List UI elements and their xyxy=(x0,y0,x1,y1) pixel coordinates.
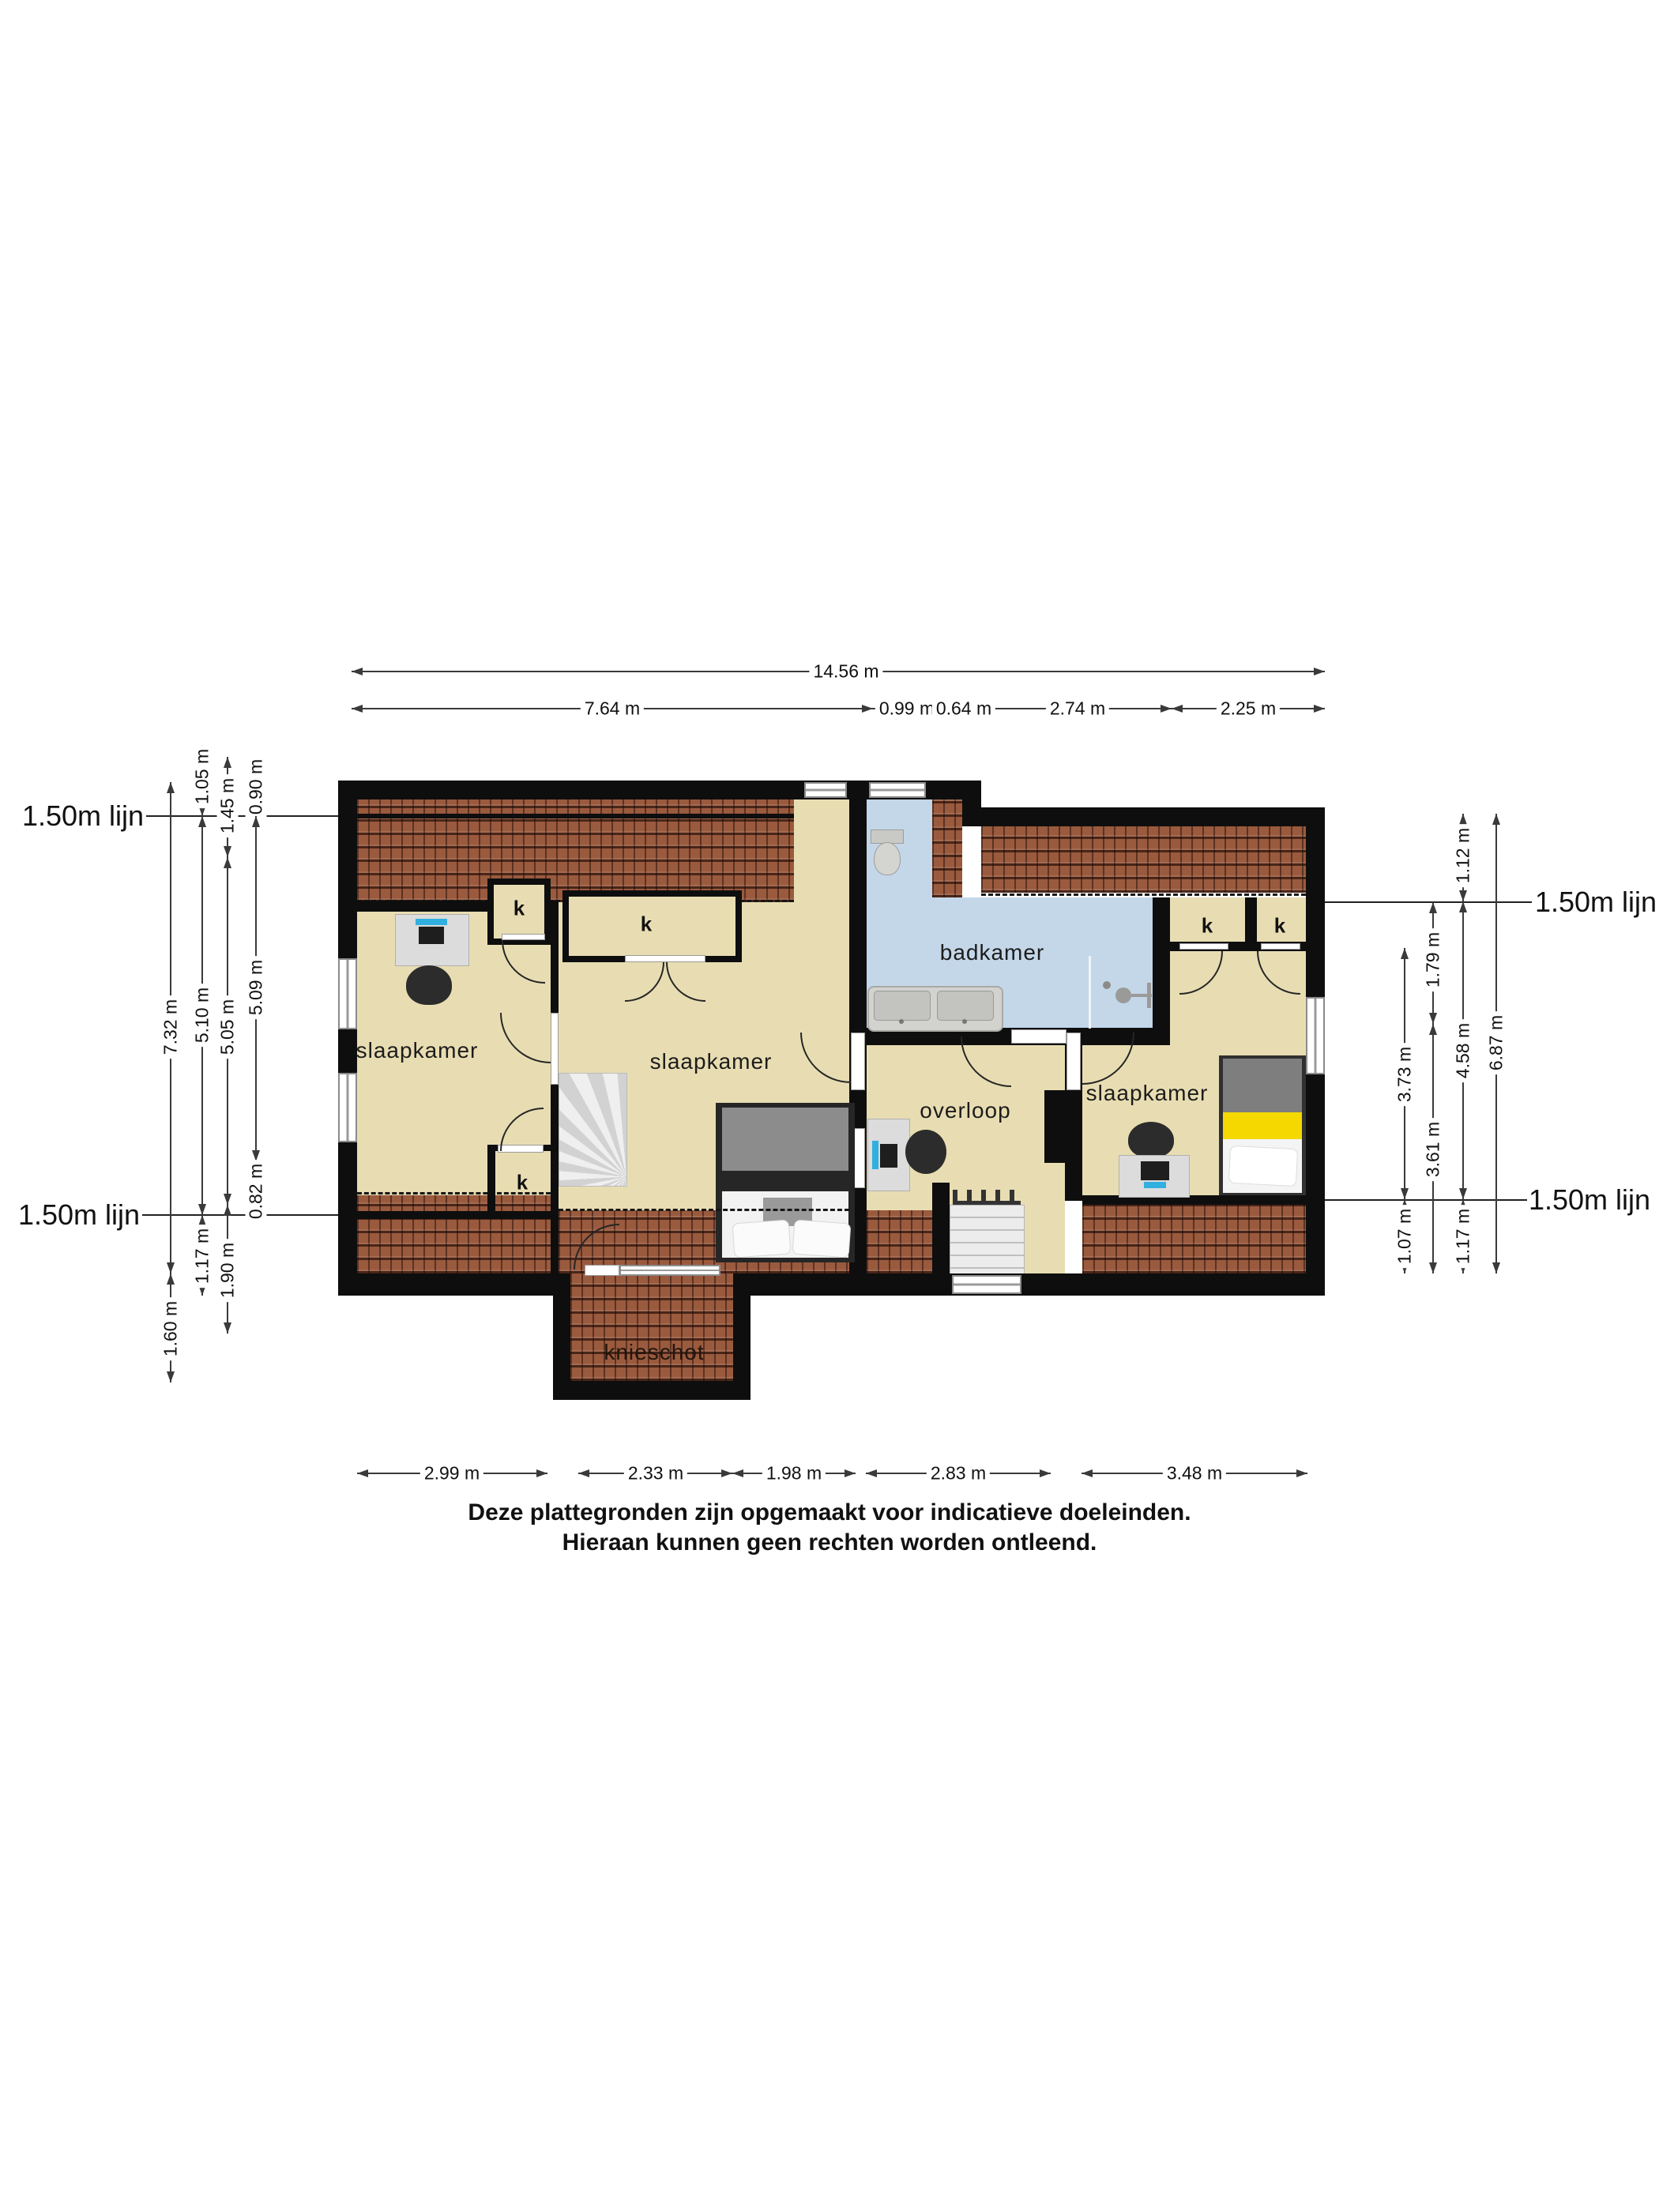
room-label-bedroom-middle: slaapkamer xyxy=(650,1049,773,1074)
dim-label: 5.05 m xyxy=(217,995,239,1059)
window xyxy=(619,1265,720,1276)
dim-arrow-icon xyxy=(1429,902,1437,913)
dim-arrow-icon xyxy=(224,846,231,857)
dim-arrow-icon xyxy=(352,705,363,713)
bed-pillow xyxy=(732,1220,792,1258)
dim-arrow-icon xyxy=(536,1469,547,1477)
bed-pillow xyxy=(792,1220,852,1258)
dim-label: 1.17 m xyxy=(192,1224,213,1288)
bathroom-window xyxy=(869,782,926,798)
dim-arrow-icon xyxy=(1401,948,1409,959)
dim-arrow-icon xyxy=(1082,1469,1093,1477)
dim-label: 14.56 m xyxy=(809,661,882,683)
dim-arrow-icon xyxy=(732,1469,743,1477)
dim-arrow-icon xyxy=(198,1204,206,1215)
dim-label: 3.61 m xyxy=(1423,1118,1444,1181)
closet-label: k xyxy=(1274,914,1285,939)
dim-arrow-icon xyxy=(578,1469,589,1477)
dim-arrow-icon xyxy=(1161,705,1172,713)
desk-chair xyxy=(406,965,452,1005)
bed-headboard xyxy=(1223,1059,1302,1112)
ref-line-150 xyxy=(142,1214,338,1216)
dim-arrow-icon xyxy=(845,1469,856,1477)
dim-label: 0.90 m xyxy=(246,755,267,818)
dim-arrow-icon xyxy=(1429,1262,1437,1273)
desk-chair xyxy=(1128,1122,1174,1158)
monitor-icon xyxy=(872,1141,878,1169)
closet-label: k xyxy=(517,1171,528,1195)
ref-line-150 xyxy=(146,815,338,817)
dim-arrow-icon xyxy=(866,1469,877,1477)
roof-area xyxy=(981,826,1306,893)
bed-pillow xyxy=(1228,1145,1298,1187)
closet-big xyxy=(562,890,742,962)
dim-arrow-icon xyxy=(167,1273,175,1285)
closet-label: k xyxy=(641,912,652,937)
dim-label: 1.45 m xyxy=(217,774,239,837)
dim-arrow-icon xyxy=(252,816,260,827)
monitor-icon xyxy=(419,927,444,944)
dim-arrow-icon xyxy=(1492,814,1500,825)
floorplan-page: 14.56 m 7.64 m 0.99 m 0.64 m 2.74 m 2.25… xyxy=(0,0,1659,2212)
dim-arrow-icon xyxy=(167,1262,175,1273)
monitor-icon xyxy=(1144,1182,1166,1188)
dim-arrow-icon xyxy=(862,705,873,713)
disclaimer-line-1: Deze plattegronden zijn opgemaakt voor i… xyxy=(0,1499,1659,1526)
window xyxy=(338,1073,357,1142)
dim-label: 7.32 m xyxy=(160,995,182,1059)
dim-label: 7.64 m xyxy=(581,698,644,720)
ref-line-label: 1.50m lijn xyxy=(18,1198,140,1232)
dim-arrow-icon xyxy=(198,816,206,827)
dim-label: 2.83 m xyxy=(927,1463,990,1484)
closet-wall xyxy=(487,1145,495,1212)
dim-arrow-icon xyxy=(1459,1188,1467,1199)
dim-arrow-icon xyxy=(1459,890,1467,901)
dim-arrow-icon xyxy=(1492,1262,1500,1273)
dim-label: 5.10 m xyxy=(192,984,213,1047)
knee-wall-bottom xyxy=(553,1381,750,1400)
dim-arrow-icon xyxy=(167,782,175,793)
dim-arrow-icon xyxy=(224,757,231,768)
roof-area xyxy=(932,799,962,897)
dim-label: 0.64 m xyxy=(932,698,995,720)
dim-label: 1.98 m xyxy=(762,1463,826,1484)
dim-label: 1.90 m xyxy=(217,1239,239,1302)
dim-arrow-icon xyxy=(224,857,231,868)
roof-area xyxy=(1082,1205,1306,1273)
toilet xyxy=(874,842,901,875)
headroom-dashed-line xyxy=(559,1209,849,1211)
exterior-wall-bottom xyxy=(750,1273,1325,1296)
wall xyxy=(357,901,487,912)
dim-arrow-icon xyxy=(1401,1188,1409,1199)
dim-arrow-icon xyxy=(224,1322,231,1334)
monitor-icon xyxy=(416,919,447,925)
faucet-icon xyxy=(899,1019,904,1024)
dim-label: 1.12 m xyxy=(1453,824,1474,887)
disclaimer-line-2: Hieraan kunnen geen rechten worden ontle… xyxy=(0,1529,1659,1556)
window xyxy=(952,1275,1021,1294)
exterior-wall-bottom xyxy=(338,1273,553,1296)
dim-label: 1.17 m xyxy=(1453,1205,1474,1268)
wall xyxy=(1082,1195,1306,1205)
dim-arrow-icon xyxy=(1429,1013,1437,1024)
dim-label: 6.87 m xyxy=(1486,1011,1507,1074)
winder-stairs xyxy=(559,1073,627,1187)
dim-label: 1.79 m xyxy=(1423,928,1444,991)
dim-label: 0.82 m xyxy=(246,1160,267,1223)
dim-label: 1.07 m xyxy=(1394,1205,1416,1268)
dim-label: 3.73 m xyxy=(1394,1043,1416,1106)
roof-line xyxy=(357,1211,553,1219)
monitor-icon xyxy=(880,1144,897,1168)
dim-arrow-icon xyxy=(224,1194,231,1205)
bathroom-wall xyxy=(1153,897,1170,1045)
dim-arrow-icon xyxy=(352,668,363,675)
exterior-wall-top xyxy=(980,807,1325,826)
dim-arrow-icon xyxy=(1296,1469,1307,1477)
dim-arrow-icon xyxy=(224,1205,231,1216)
wall xyxy=(551,901,559,1273)
dim-arrow-icon xyxy=(357,1469,368,1477)
ref-line-150 xyxy=(1325,901,1532,903)
main-stairs xyxy=(950,1205,1025,1277)
dim-arrow-icon xyxy=(721,1469,732,1477)
dim-label: 0.99 m xyxy=(875,698,939,720)
dim-arrow-icon xyxy=(1172,705,1183,713)
room-label-knee-wall: knieschot xyxy=(604,1340,704,1365)
closet-door xyxy=(1261,943,1300,950)
door-opening xyxy=(851,1033,865,1090)
bathroom-door xyxy=(1011,1029,1066,1044)
shower-arm xyxy=(1147,983,1151,1008)
door-opening xyxy=(1066,1033,1081,1090)
dim-arrow-icon xyxy=(1314,705,1325,713)
headroom-dashed-line xyxy=(981,893,1306,896)
closet-door xyxy=(1179,943,1228,950)
ref-line-label: 1.50m lijn xyxy=(1535,886,1657,919)
roof-area xyxy=(867,1210,932,1273)
shower-head-icon xyxy=(1115,987,1131,1003)
dim-arrow-icon xyxy=(1314,668,1325,675)
dim-label: 3.48 m xyxy=(1163,1463,1226,1484)
exterior-wall-left xyxy=(338,781,357,1296)
window xyxy=(1306,997,1325,1074)
dim-label: 2.33 m xyxy=(624,1463,687,1484)
door-opening xyxy=(551,1013,559,1085)
closet-door xyxy=(502,934,545,940)
dim-label: 2.74 m xyxy=(1046,698,1109,720)
closet-door xyxy=(625,955,705,962)
shower-glass xyxy=(1089,956,1091,1029)
room-label-bathroom: badkamer xyxy=(940,940,1045,965)
dim-label: 2.99 m xyxy=(420,1463,483,1484)
dim-label: 4.58 m xyxy=(1453,1019,1474,1082)
desk-chair xyxy=(905,1130,946,1174)
wall xyxy=(1044,1090,1082,1163)
roof-area xyxy=(357,1195,553,1273)
dim-arrow-icon xyxy=(1459,901,1467,912)
sink-basin xyxy=(937,991,994,1021)
dim-arrow-icon xyxy=(1040,1469,1051,1477)
dim-label: 5.09 m xyxy=(246,956,267,1019)
dormer-floor xyxy=(794,799,849,910)
faucet-icon xyxy=(962,1019,967,1024)
dim-label: 1.05 m xyxy=(192,745,213,808)
room-label-bedroom-left: slaapkamer xyxy=(356,1038,479,1063)
room-label-landing: overloop xyxy=(920,1098,1010,1123)
dim-arrow-icon xyxy=(1429,1024,1437,1035)
stair-railing xyxy=(953,1190,1021,1205)
ref-line-label: 1.50m lijn xyxy=(1529,1183,1650,1217)
dim-arrow-icon xyxy=(167,1371,175,1382)
bed-accent-stripe xyxy=(1223,1112,1302,1139)
dormer-window xyxy=(804,782,847,798)
dim-label: 1.60 m xyxy=(160,1297,182,1360)
roof-line xyxy=(357,814,794,818)
bed-headboard xyxy=(722,1108,848,1171)
room-label-bedroom-right: slaapkamer xyxy=(1086,1081,1209,1106)
window xyxy=(338,958,357,1029)
exterior-wall-step xyxy=(962,781,981,826)
monitor-icon xyxy=(1141,1161,1169,1180)
closet-label: k xyxy=(513,897,525,921)
dim-label: 2.25 m xyxy=(1217,698,1280,720)
ref-line-label: 1.50m lijn xyxy=(22,799,144,833)
sink-basin xyxy=(874,991,931,1021)
closet-divider-wall xyxy=(1245,897,1257,951)
closet-label: k xyxy=(1202,914,1213,939)
shower-drain xyxy=(1103,981,1111,989)
